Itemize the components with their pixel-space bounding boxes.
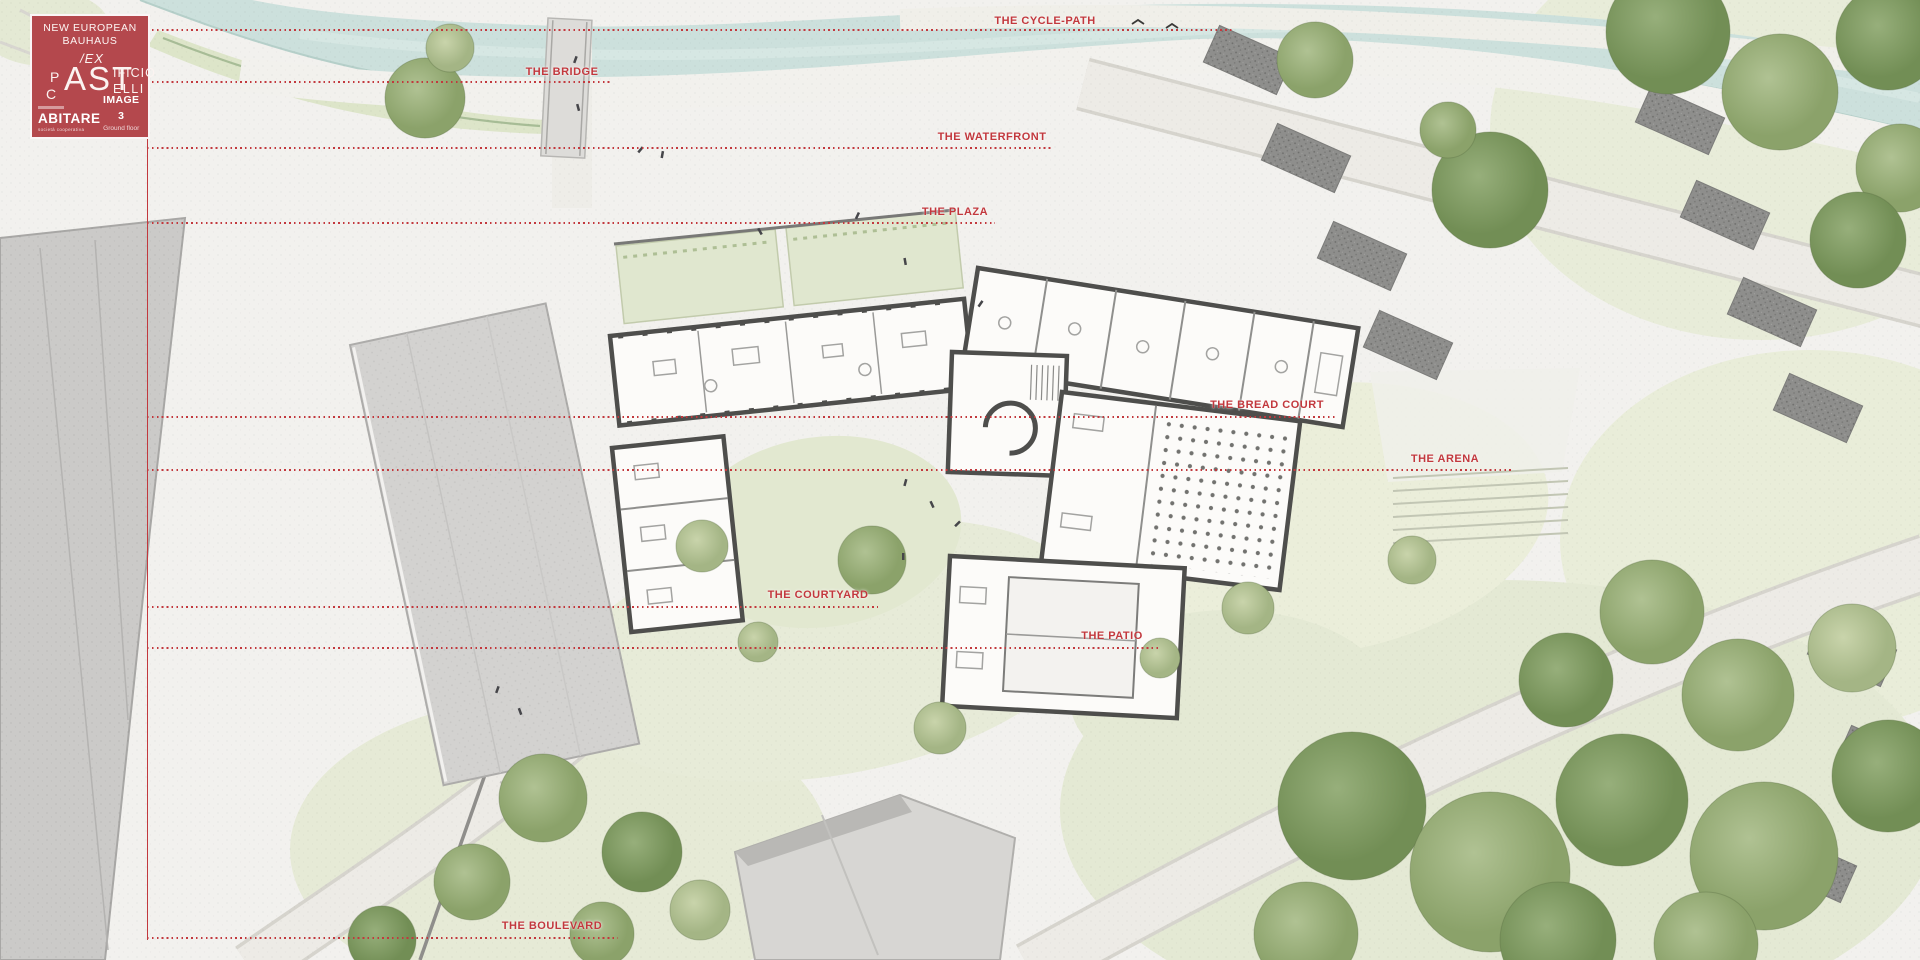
site-plan-canvas: NEW EUROPEAN BAUHAUS /EX P C AST IFICIO …	[0, 0, 1920, 960]
annotation-line-patio	[147, 647, 1158, 649]
image-caption: Ground floor	[101, 126, 143, 133]
logo-ificio: IFICIO	[113, 67, 156, 80]
map-label-courtyard: THE COURTYARD	[728, 589, 908, 601]
publisher-overline	[38, 106, 64, 109]
bridge	[541, 18, 592, 158]
program-line2: BAUHAUS	[32, 35, 148, 48]
map-label-patio: THE PATIO	[1022, 630, 1202, 642]
map-label-waterfront: THE WATERFRONT	[902, 131, 1082, 143]
image-caption-block: IMAGE 3 Ground floor	[101, 91, 143, 132]
map-label-bread-court: THE BREAD COURT	[1177, 399, 1357, 411]
annotation-guide-vertical-line	[147, 139, 148, 940]
annotation-line-arena	[147, 469, 1512, 471]
annotation-line-cycle-path	[152, 29, 1232, 31]
legend-box: NEW EUROPEAN BAUHAUS /EX P C AST IFICIO …	[30, 14, 150, 139]
map-label-cycle-path: THE CYCLE-PATH	[955, 15, 1135, 27]
map-label-arena: THE ARENA	[1355, 453, 1535, 465]
central-block	[948, 352, 1067, 476]
annotation-line-bridge	[152, 81, 612, 83]
annotation-line-courtyard	[147, 606, 878, 608]
annotation-line-boulevard	[147, 937, 618, 939]
image-label: IMAGE 3	[103, 94, 139, 122]
annotation-line-plaza	[147, 222, 995, 224]
annotation-line-waterfront	[147, 147, 1052, 149]
map-label-boulevard: THE BOULEVARD	[462, 920, 642, 932]
map-label-bridge: THE BRIDGE	[472, 66, 652, 78]
annotation-line-bread-court	[147, 416, 1336, 418]
publisher-note: società cooperativa	[38, 128, 101, 133]
site-plan-drawing	[0, 0, 1920, 960]
program-title: NEW EUROPEAN BAUHAUS	[32, 22, 148, 47]
logo-p: P	[50, 70, 59, 84]
program-line1: NEW EUROPEAN	[32, 22, 148, 35]
publisher-logo: ABITARE società cooperativa	[38, 106, 101, 132]
map-label-plaza: THE PLAZA	[865, 206, 1045, 218]
east-hall	[1041, 392, 1300, 590]
publisher-name: ABITARE	[38, 111, 101, 126]
